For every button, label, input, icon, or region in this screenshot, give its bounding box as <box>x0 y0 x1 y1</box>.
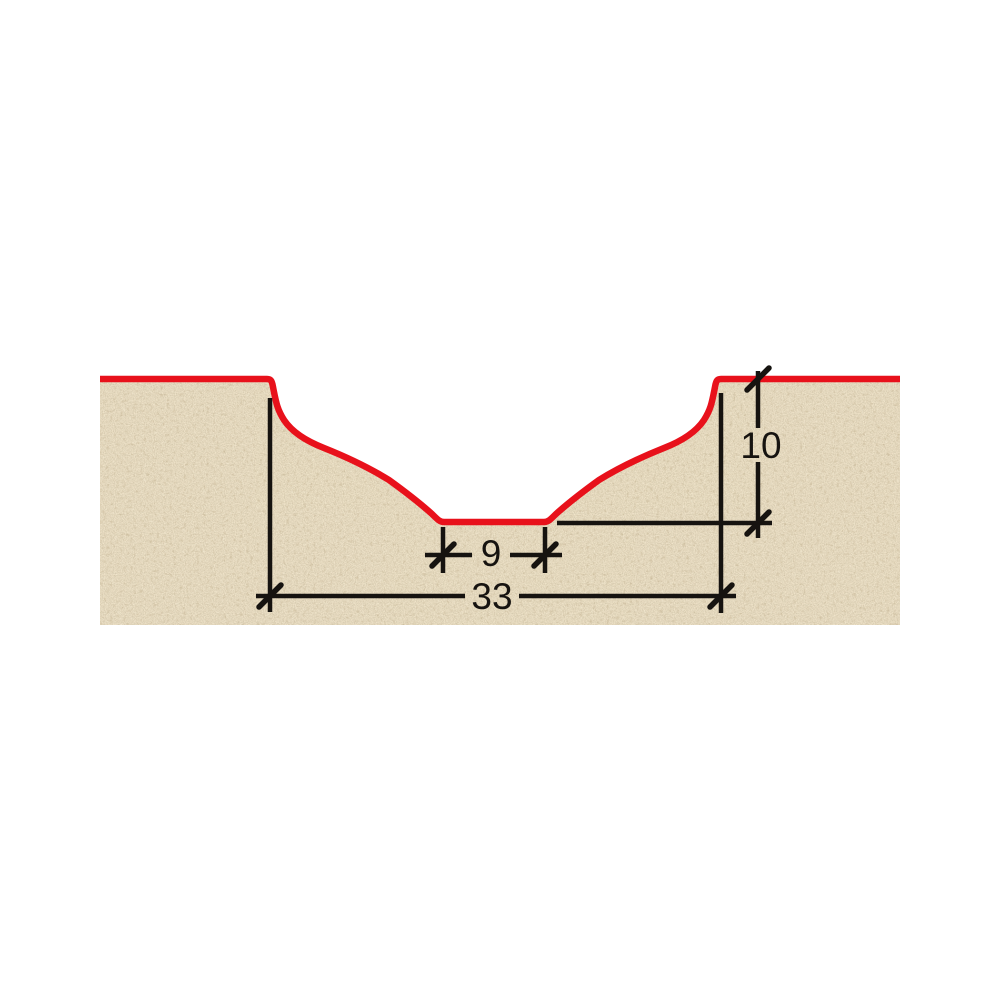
label-bottom-width: 9 <box>481 533 502 574</box>
label-overall-width: 33 <box>471 576 512 617</box>
profile-diagram: 9 33 10 <box>0 0 1000 1000</box>
label-depth: 10 <box>740 425 781 466</box>
diagram-canvas: 9 33 10 <box>0 0 1000 1000</box>
